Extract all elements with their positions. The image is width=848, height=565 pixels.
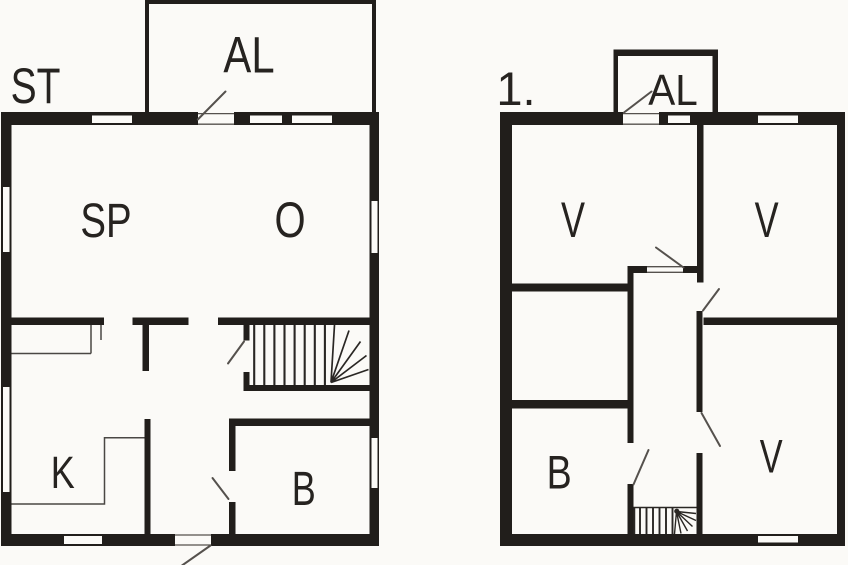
svg-text:ST: ST — [11, 57, 61, 114]
svg-text:AL: AL — [648, 65, 698, 114]
svg-text:V: V — [561, 193, 585, 248]
svg-text:K: K — [51, 447, 75, 498]
svg-text:SP: SP — [80, 195, 131, 248]
svg-text:AL: AL — [223, 27, 274, 84]
svg-text:V: V — [760, 430, 783, 483]
svg-text:V: V — [755, 193, 779, 248]
svg-text:1.: 1. — [496, 62, 535, 115]
svg-text:O: O — [274, 192, 305, 248]
svg-text:B: B — [292, 462, 316, 515]
svg-text:B: B — [547, 447, 572, 500]
